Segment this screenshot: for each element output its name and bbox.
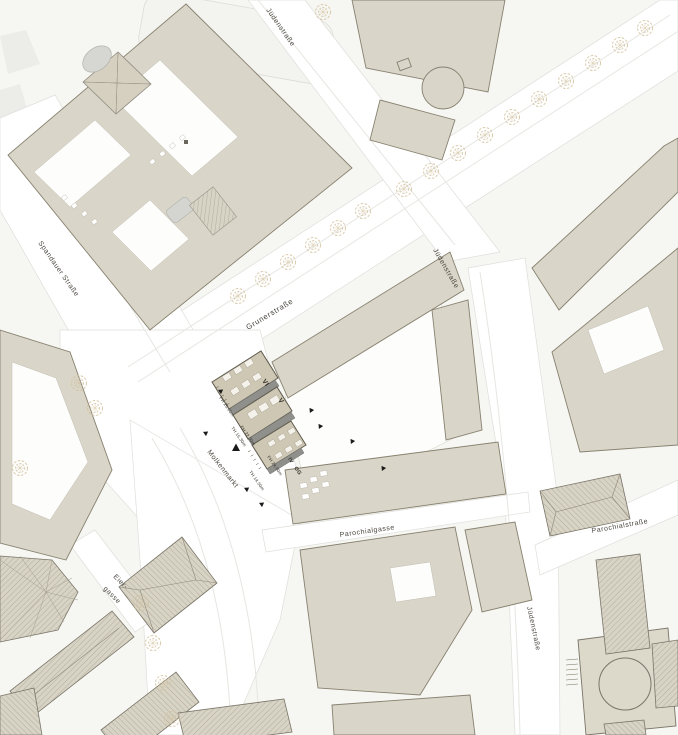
south-block-court	[390, 562, 436, 602]
church-tower-circle	[599, 658, 651, 710]
church-north-arm	[596, 554, 650, 654]
court-dark-shaft	[184, 140, 188, 144]
molkenmarkt-site-plan-svg: Jüdenstraße Grunerstraße Jüdenstraße Spa…	[0, 0, 678, 735]
church-east-arm	[652, 640, 678, 708]
round-building	[422, 67, 464, 109]
site-plan: Jüdenstraße Grunerstraße Jüdenstraße Spa…	[0, 0, 678, 735]
